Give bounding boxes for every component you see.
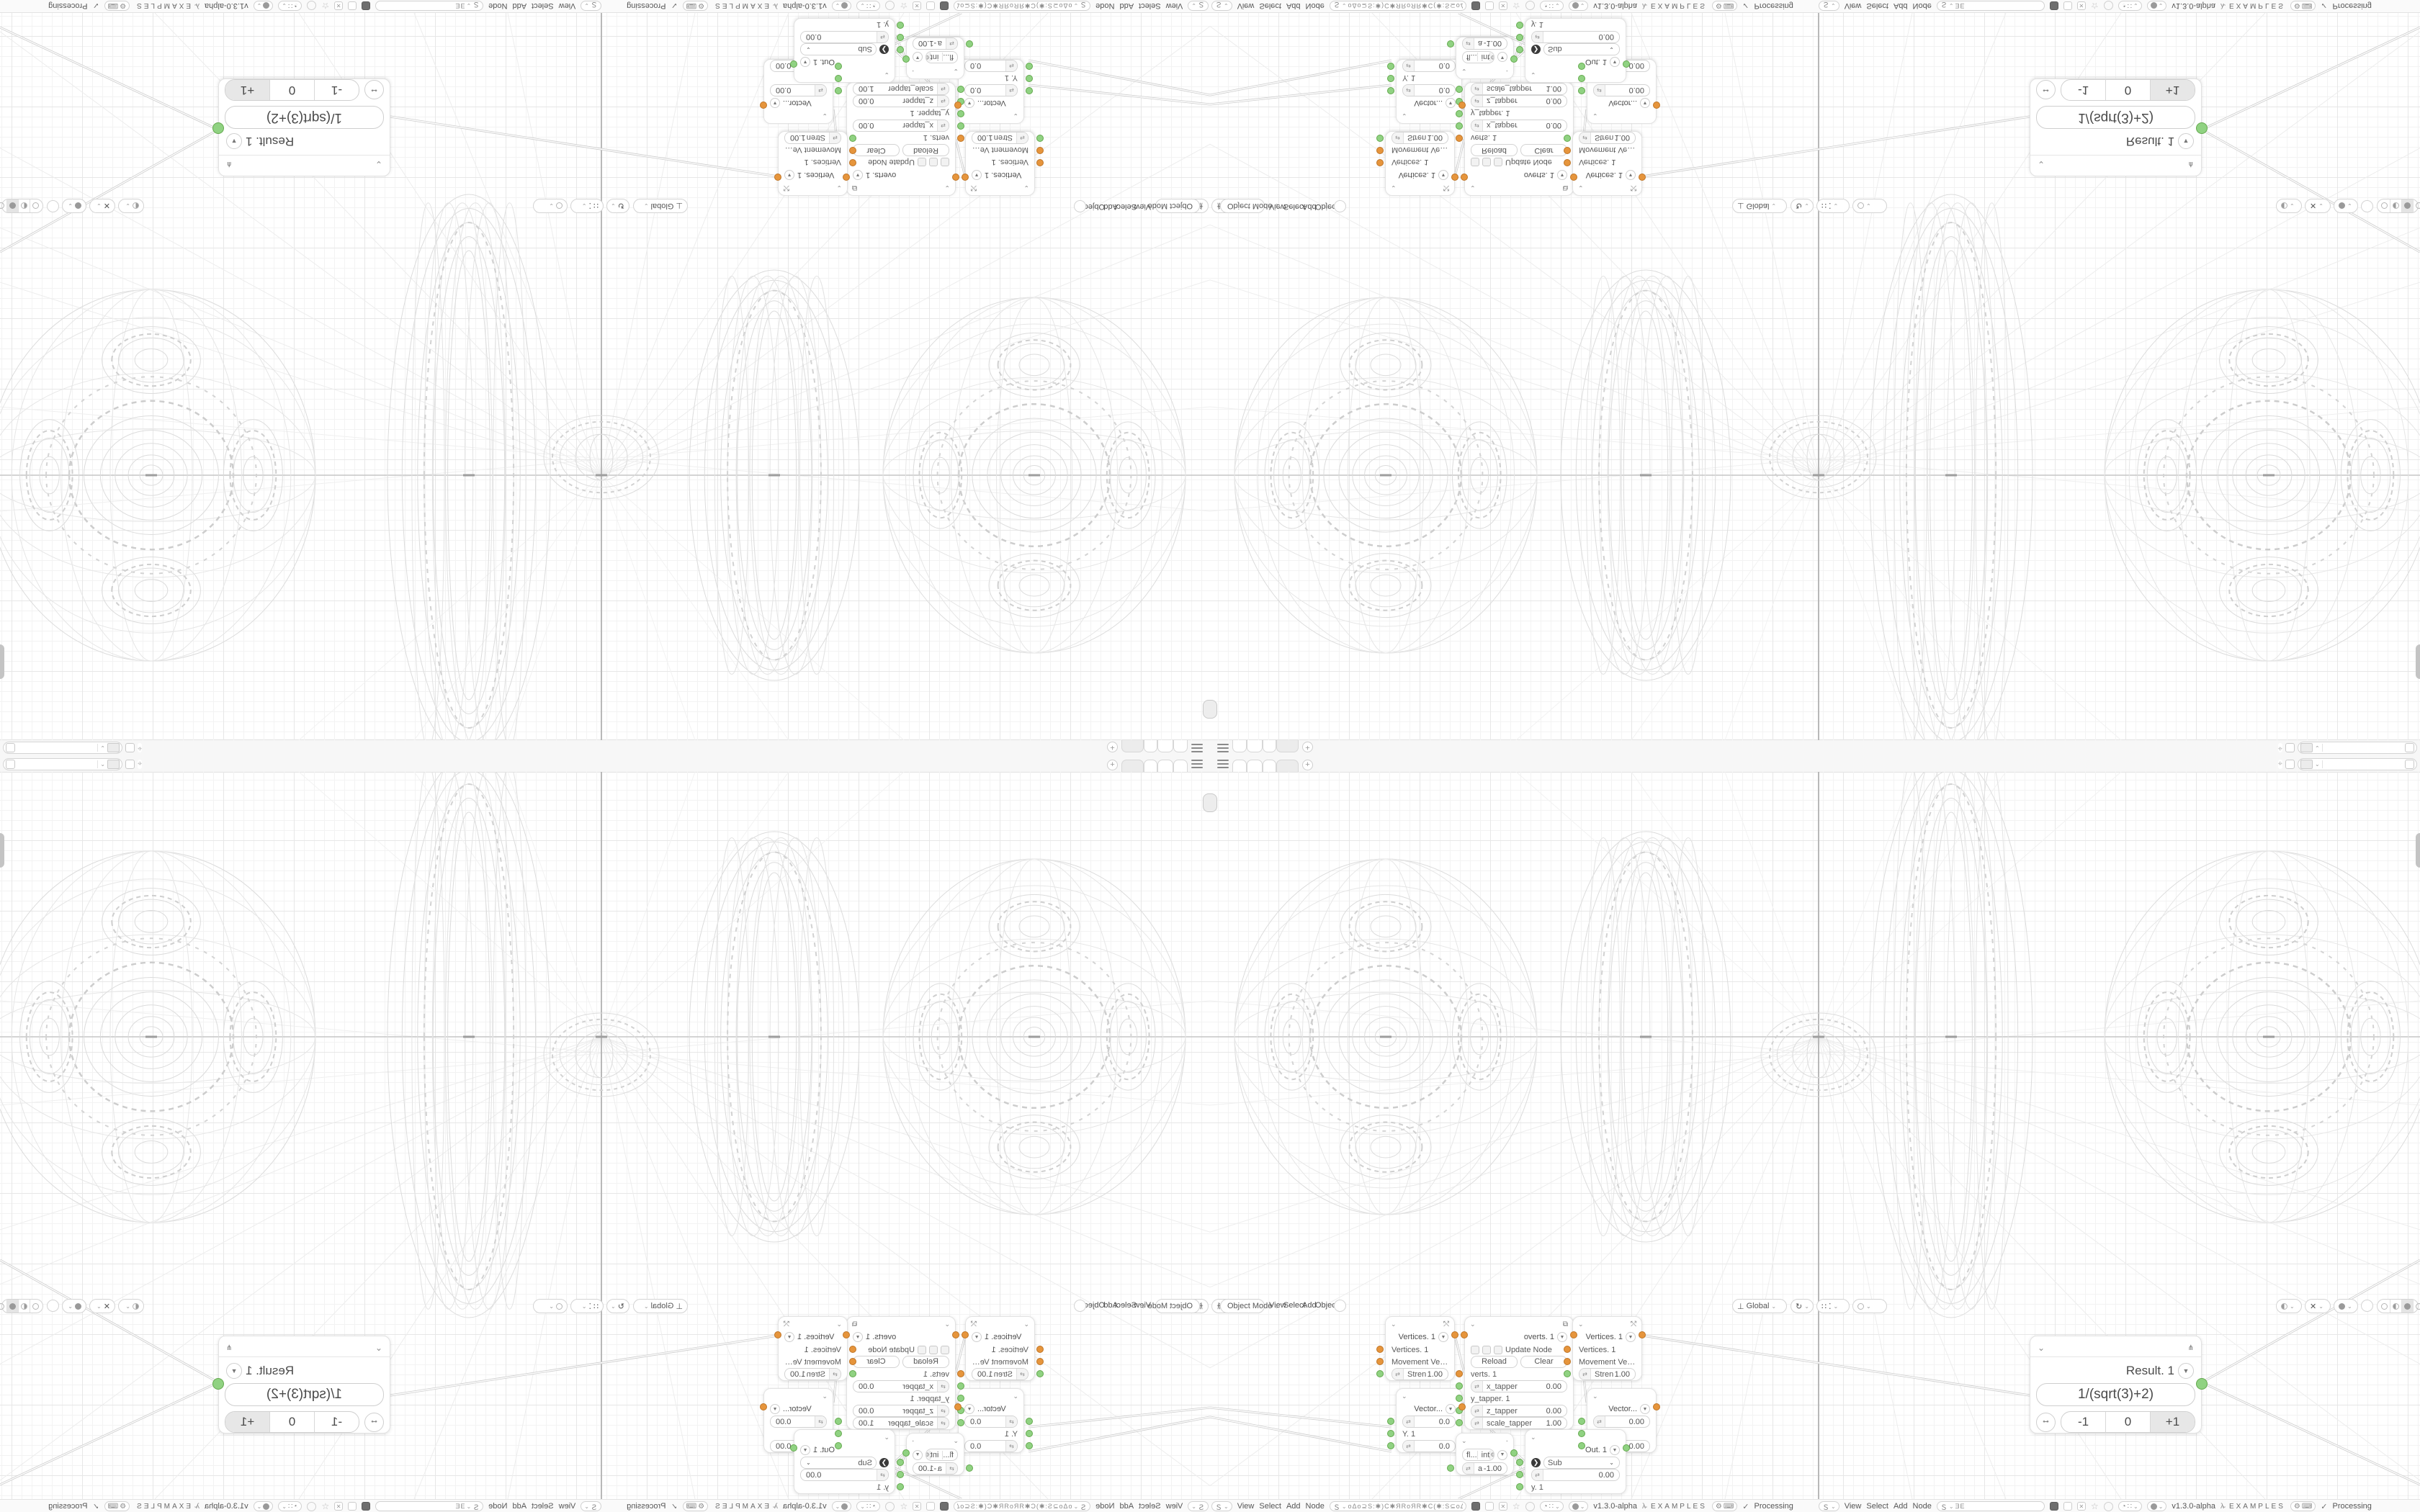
- tab-4[interactable]: [1276, 760, 1299, 772]
- record-icon: [1572, 3, 1579, 9]
- circle-icon[interactable]: [307, 1502, 316, 1511]
- chevron-down-icon: ⌄: [1804, 1303, 1809, 1310]
- shading-material[interactable]: [7, 199, 19, 212]
- shading-rendered[interactable]: [0, 199, 7, 212]
- scene-selector[interactable]: ⌄: [2298, 758, 2417, 770]
- hamburger-icon[interactable]: [1217, 760, 1229, 768]
- shading-solid[interactable]: [2390, 199, 2401, 212]
- panel-handle[interactable]: [1203, 700, 1210, 719]
- menu-view[interactable]: View: [1237, 1, 1255, 10]
- record-button[interactable]: ⌄: [2147, 1501, 2167, 1511]
- scene-name-field[interactable]: [2322, 760, 2403, 768]
- copy-icon[interactable]: [125, 744, 135, 753]
- proportional-edit-icon: [556, 1303, 563, 1310]
- pin-icon[interactable]: ⌖: [138, 760, 142, 769]
- copy-icon[interactable]: [2285, 744, 2295, 753]
- hamburger-icon[interactable]: [1191, 744, 1203, 752]
- viewport-canvas[interactable]: [0, 13, 1210, 740]
- shading-material[interactable]: [7, 1300, 19, 1313]
- mode-selector[interactable]: Object Mode⌄: [1155, 199, 1200, 213]
- shield-icon[interactable]: [2050, 1502, 2058, 1511]
- viewport-header: 𐀪⌄Object Mode⌄ViewSelectAddObject⊥Global…: [0, 1298, 1210, 1315]
- xray-toggle[interactable]: ⌄: [62, 1299, 86, 1313]
- menu-add[interactable]: Add: [1302, 1301, 1317, 1310]
- viewport-canvas[interactable]: [1210, 13, 2420, 740]
- xray-icon: [75, 203, 81, 210]
- tree-path-field[interactable]: Ｓ⌄oΔo⊇S:✱)C✱ЯRoЯR✱C(✱:S⊆oΔo: [954, 1, 1090, 11]
- menu-add[interactable]: Add: [1119, 1502, 1134, 1511]
- shading-solid[interactable]: [2390, 1300, 2401, 1313]
- pin-icon[interactable]: ☆: [321, 1, 329, 11]
- orbit-grid-button[interactable]: ◔∷⌄: [1540, 1501, 1564, 1511]
- pin-icon[interactable]: ⌖: [138, 744, 142, 753]
- chevron-down-icon: ⌄: [2159, 1503, 2164, 1510]
- scene-selector[interactable]: ⌄: [2298, 742, 2417, 755]
- tree-path-field[interactable]: Ｓ⌄oΔo⊇S:✱)C✱ЯRoЯR✱C(✱:S⊆oΔo: [954, 1501, 1090, 1511]
- tree-path-field[interactable]: Ｓ⌄ƎE: [375, 1, 483, 11]
- mode-selector[interactable]: Object Mode⌄: [1155, 1299, 1200, 1313]
- pin-icon[interactable]: ☆: [1512, 1501, 1520, 1511]
- menu-add[interactable]: Add: [1119, 1, 1134, 10]
- status-label: Processing: [1754, 1502, 1793, 1511]
- shading-wireframe[interactable]: [30, 199, 41, 212]
- shield-icon[interactable]: [2050, 1, 2058, 10]
- close-icon[interactable]: ✕: [913, 1502, 921, 1511]
- orbit-icon: ◔: [294, 1503, 298, 1511]
- shading-wireframe[interactable]: [2379, 1300, 2390, 1313]
- orbit-grid-button[interactable]: ◔∷⌄: [856, 1501, 880, 1511]
- tools-group[interactable]: ⚙⌨: [104, 1, 130, 11]
- overlay-icon: ✕: [2310, 202, 2316, 211]
- tree-path-field[interactable]: Ｓ⌄ƎE: [1937, 1, 2045, 11]
- render-preview-circle[interactable]: [47, 1300, 59, 1312]
- copy-icon[interactable]: [2405, 760, 2414, 769]
- menu-add[interactable]: Add: [1894, 1, 1908, 10]
- copy-icon[interactable]: [926, 1502, 935, 1511]
- xray-toggle[interactable]: ⌄: [2334, 199, 2358, 213]
- record-button[interactable]: ⌄: [254, 1501, 274, 1511]
- solid-icon: [2393, 203, 2399, 210]
- tree-path-field[interactable]: Ｓ⌄ƎE: [375, 1501, 483, 1511]
- shield-icon[interactable]: [940, 1502, 949, 1511]
- menu-select[interactable]: Select: [1139, 1, 1161, 10]
- pin-icon[interactable]: ☆: [1512, 1, 1520, 11]
- menu-node[interactable]: Node: [488, 1, 507, 10]
- chevron-down-icon: ⌄: [1804, 203, 1809, 210]
- pin-icon[interactable]: ☆: [2091, 1501, 2099, 1511]
- tab-2[interactable]: [1247, 740, 1263, 752]
- pin-icon[interactable]: ☆: [2091, 1, 2099, 11]
- orbit-grid-button[interactable]: ◔∷⌄: [278, 1, 302, 11]
- shading-rendered[interactable]: [2413, 1300, 2420, 1313]
- menu-node[interactable]: Node: [1095, 1, 1114, 10]
- menu-view[interactable]: View: [1845, 1, 1862, 10]
- dna-icon: λ̴: [2220, 1503, 2224, 1511]
- proportional-editing[interactable]: ⌄: [533, 199, 568, 213]
- terminal-icon: ⌨: [2302, 1503, 2312, 1511]
- close-icon[interactable]: ✕: [2077, 1, 2086, 10]
- gizmo-toggle[interactable]: ⌄: [2276, 199, 2302, 213]
- examples-button[interactable]: EXAMPLES: [135, 2, 191, 10]
- circle-icon[interactable]: [885, 1, 895, 11]
- chevron-down-icon: ⌄: [2290, 1303, 2295, 1310]
- menu-select[interactable]: Select: [1114, 1301, 1137, 1310]
- menu-select[interactable]: Select: [1259, 1, 1281, 10]
- check-icon: ✓: [93, 1502, 99, 1511]
- panel-handle[interactable]: [1203, 793, 1210, 812]
- menu-node[interactable]: Node: [1913, 1502, 1932, 1511]
- xray-toggle[interactable]: ⌄: [2334, 1299, 2358, 1313]
- chevron-down-icon: ⌄: [611, 203, 616, 210]
- shield-icon[interactable]: [1471, 1502, 1480, 1511]
- tab-1[interactable]: [1173, 740, 1188, 752]
- scrollbar-thumb[interactable]: [0, 644, 4, 679]
- snap-toggle[interactable]: ↻⌄: [606, 1299, 629, 1313]
- pin-icon[interactable]: ⌖: [2278, 744, 2282, 753]
- chevron-down-icon: ⌄: [1580, 1503, 1585, 1510]
- copy-icon[interactable]: [1485, 1502, 1494, 1511]
- shading-material[interactable]: [2401, 199, 2413, 212]
- shading-segments: [2379, 1300, 2420, 1313]
- tab-4[interactable]: [1121, 740, 1144, 752]
- chevron-down-icon: ⌄: [2159, 3, 2164, 9]
- wireframe-icon: [32, 203, 39, 210]
- tools-group[interactable]: ⚙⌨: [2290, 1, 2316, 11]
- add-tab-button[interactable]: +: [1302, 742, 1313, 752]
- menu-select[interactable]: Select: [1139, 1502, 1161, 1511]
- circle-icon[interactable]: [2104, 1, 2113, 11]
- tools-group[interactable]: ⚙⌨: [683, 1, 708, 11]
- tree-path-field[interactable]: Ｓ⌄ƎE: [1937, 1501, 2045, 1511]
- tab-2[interactable]: [1157, 760, 1173, 772]
- wireframe-icon: [32, 1303, 39, 1310]
- shading-material[interactable]: [2401, 1300, 2413, 1313]
- menu-view[interactable]: View: [1166, 1502, 1183, 1511]
- menu-select[interactable]: Select: [1114, 202, 1137, 211]
- copy-icon[interactable]: [125, 760, 135, 769]
- tab-1[interactable]: [1173, 760, 1188, 772]
- scrollbar-thumb[interactable]: [2416, 833, 2420, 868]
- menu-select[interactable]: Select: [1866, 1, 1888, 10]
- dna-icon: λ̴: [196, 1503, 200, 1511]
- menu-view[interactable]: View: [1845, 1502, 1862, 1511]
- add-tab-button[interactable]: +: [1107, 742, 1118, 752]
- record-icon: [841, 3, 848, 9]
- scene-selector[interactable]: ⌄: [3, 742, 122, 755]
- snap-toggle[interactable]: ↻⌄: [1791, 1299, 1814, 1313]
- proportional-editing[interactable]: ⌄: [1852, 199, 1887, 213]
- xray-icon: [2339, 1303, 2345, 1310]
- copy-icon[interactable]: [1485, 1, 1494, 10]
- mode-selector[interactable]: Object Mode⌄: [1220, 199, 1265, 213]
- copy-icon[interactable]: [6, 760, 15, 769]
- pin-icon[interactable]: ☆: [321, 1501, 329, 1511]
- tools-group[interactable]: ⚙⌨: [1712, 1501, 1737, 1511]
- shield-icon[interactable]: [1471, 1, 1480, 10]
- editor-type-button[interactable]: Ｓ⌄: [1188, 1, 1209, 11]
- tree-path-value: oΔo⊇S:✱)C✱ЯRoЯR✱C(✱:S⊆oΔo: [1348, 1503, 1463, 1511]
- footer-segment-2: Ｓ⌄ViewSelectAddNodeＳ⌄ƎE✕☆◔∷⌄⌄v1.3.0-alph…: [1, 0, 601, 12]
- terminal-icon: ⌨: [1724, 2, 1734, 10]
- circle-icon[interactable]: [2104, 1502, 2113, 1511]
- tab-3[interactable]: [1144, 740, 1157, 752]
- snap-target-icon: ⁚: [589, 1302, 592, 1311]
- menu-select[interactable]: Select: [532, 1, 554, 10]
- snap-target[interactable]: ∷⁚⌄: [1816, 199, 1850, 213]
- grid-icon: ∷: [2128, 2, 2132, 10]
- hamburger-icon[interactable]: [1191, 760, 1203, 768]
- record-button[interactable]: ⌄: [832, 1, 852, 11]
- circle-icon[interactable]: [1525, 1502, 1535, 1511]
- scene-name-field[interactable]: [17, 760, 98, 768]
- material-icon: [9, 1303, 16, 1310]
- tools-group[interactable]: ⚙⌨: [2290, 1501, 2316, 1511]
- record-icon: [2151, 1503, 2157, 1510]
- annotate-circle[interactable]: [1074, 1300, 1086, 1312]
- chevron-down-icon: ⌄: [584, 3, 589, 9]
- copy-icon[interactable]: [926, 1, 935, 10]
- editor-type-button[interactable]: Ｓ⌄: [1211, 1, 1232, 11]
- pin-icon[interactable]: ⌖: [2278, 760, 2282, 769]
- tools-group[interactable]: ⚙⌨: [1712, 1, 1737, 11]
- tree-path-field[interactable]: Ｓ⌄oΔo⊇S:✱)C✱ЯRoЯR✱C(✱:S⊆oΔo: [1330, 1, 1466, 11]
- tab-2[interactable]: [1247, 760, 1263, 772]
- version-label: v1.3.0-alpha: [783, 1, 827, 10]
- examples-button[interactable]: EXAMPLES: [2229, 1503, 2285, 1511]
- chevron-down-icon: ⌄: [1073, 1503, 1078, 1510]
- shading-wireframe[interactable]: [2379, 199, 2390, 212]
- copy-icon[interactable]: [6, 744, 15, 753]
- gizmo-toggle[interactable]: ⌄: [118, 199, 144, 213]
- shading-mode-group[interactable]: ⌄: [1, 199, 43, 213]
- shading-solid[interactable]: [19, 1300, 30, 1313]
- close-icon[interactable]: ✕: [334, 1, 343, 10]
- status-bar: Ｓ⌄ViewSelectAddNodeＳ⌄oΔo⊇S:✱)C✱ЯRoЯR✱C(✱…: [1210, 0, 2420, 13]
- close-icon[interactable]: ✕: [334, 1502, 343, 1511]
- shading-wireframe[interactable]: [30, 1300, 41, 1313]
- menu-node[interactable]: Node: [1095, 1502, 1114, 1511]
- hamburger-icon[interactable]: [1217, 744, 1229, 752]
- snap-target[interactable]: ∷⁚⌄: [570, 1299, 604, 1313]
- tab-1[interactable]: [1232, 760, 1247, 772]
- editor-type-button[interactable]: Ｓ⌄: [1819, 1501, 1839, 1511]
- orbit-grid-button[interactable]: ◔∷⌄: [1540, 1, 1564, 11]
- mode-selector[interactable]: Object Mode⌄: [1220, 1299, 1265, 1313]
- transform-orientation[interactable]: ⊥Global⌄: [633, 199, 688, 213]
- logo-squiggle-icon: Ｓ: [1080, 1, 1087, 12]
- orbit-grid-button[interactable]: ◔∷⌄: [856, 1, 880, 11]
- chevron-down-icon: ⌄: [1866, 203, 1871, 210]
- terminal-icon: ⌨: [686, 1503, 696, 1511]
- chevron-down-icon: ⌄: [2347, 1303, 2352, 1310]
- tab-3[interactable]: [1263, 760, 1276, 772]
- copy-icon[interactable]: [2405, 744, 2414, 753]
- status-label: Processing: [48, 1502, 87, 1511]
- transform-orientation[interactable]: ⊥Global⌄: [1732, 1299, 1787, 1313]
- examples-button[interactable]: EXAMPLES: [135, 1503, 191, 1511]
- viewport-canvas[interactable]: [1210, 772, 2420, 1499]
- menu-view[interactable]: View: [1166, 1, 1183, 10]
- shield-icon[interactable]: [940, 1, 949, 10]
- menu-add[interactable]: Add: [1103, 202, 1118, 211]
- circle-icon[interactable]: [1525, 1, 1535, 11]
- editor-type-button[interactable]: Ｓ⌄: [581, 1501, 601, 1511]
- tools-group[interactable]: ⚙⌨: [104, 1501, 130, 1511]
- pin-icon[interactable]: ☆: [900, 1, 907, 11]
- snap-target[interactable]: ∷⁚⌄: [1816, 1299, 1850, 1313]
- proportional-editing[interactable]: ⌄: [533, 1299, 568, 1313]
- tab-4[interactable]: [1276, 740, 1299, 752]
- copy-icon[interactable]: [348, 1, 357, 10]
- close-icon[interactable]: ✕: [1499, 1, 1507, 10]
- menu-node[interactable]: Node: [488, 1502, 507, 1511]
- scene-name-field[interactable]: [17, 744, 98, 752]
- menu-add[interactable]: Add: [1894, 1502, 1908, 1511]
- render-preview-circle[interactable]: [47, 200, 59, 212]
- close-icon[interactable]: ✕: [2077, 1502, 2086, 1511]
- shading-solid[interactable]: [19, 199, 30, 212]
- orientation-label: Global: [1747, 1302, 1770, 1310]
- editor-unit: +⌖⌄ 𐀪⌄Object Mode⌄ViewSelectAddObject⊥Gl…: [1210, 756, 2420, 1512]
- menu-node[interactable]: Node: [1306, 1, 1325, 10]
- panel-handle[interactable]: [1210, 793, 1217, 812]
- editor-type-button[interactable]: Ｓ⌄: [1819, 1, 1839, 11]
- scrollbar-thumb[interactable]: [2416, 644, 2420, 679]
- shading-mode-group[interactable]: ⌄: [2377, 1299, 2419, 1313]
- menu-view[interactable]: View: [559, 1, 576, 10]
- record-button[interactable]: ⌄: [1569, 1, 1589, 11]
- orbit-grid-button[interactable]: ◔∷⌄: [2118, 1501, 2142, 1511]
- examples-button[interactable]: EXAMPLES: [713, 1503, 769, 1511]
- close-icon[interactable]: ✕: [1499, 1502, 1507, 1511]
- scene-svg: [0, 772, 1210, 1499]
- gizmo-toggle[interactable]: ⌄: [118, 1299, 144, 1313]
- menu-add[interactable]: Add: [512, 1, 526, 10]
- examples-button[interactable]: EXAMPLES: [1651, 2, 1707, 10]
- chevron-down-icon: ⌄: [257, 1503, 262, 1510]
- editor-type-button[interactable]: Ｓ⌄: [1211, 1501, 1232, 1511]
- shield-icon[interactable]: [362, 1502, 370, 1511]
- annotate-circle[interactable]: [1074, 200, 1086, 212]
- editor-type-button[interactable]: Ｓ⌄: [581, 1, 601, 11]
- copy-icon[interactable]: [2285, 760, 2295, 769]
- proportional-editing[interactable]: ⌄: [1852, 1299, 1887, 1313]
- shading-mode-group[interactable]: ⌄: [2377, 199, 2419, 213]
- overlay-toggle[interactable]: ✕⌄: [2305, 199, 2331, 213]
- copy-icon[interactable]: [348, 1502, 357, 1511]
- xray-toggle[interactable]: ⌄: [62, 199, 86, 213]
- tree-path-field[interactable]: Ｓ⌄oΔo⊇S:✱)C✱ЯRoЯR✱C(✱:S⊆oΔo: [1330, 1501, 1466, 1511]
- shading-mode-group[interactable]: ⌄: [1, 1299, 43, 1313]
- render-preview-circle[interactable]: [2361, 200, 2373, 212]
- menu-view[interactable]: View: [1237, 1502, 1255, 1511]
- overlay-toggle[interactable]: ✕⌄: [89, 199, 115, 213]
- shield-icon[interactable]: [362, 1, 370, 10]
- menu-node[interactable]: Node: [1913, 1, 1932, 10]
- shading-rendered[interactable]: [0, 1300, 7, 1313]
- copy-icon[interactable]: [2063, 1502, 2072, 1511]
- menu-add[interactable]: Add: [1286, 1, 1301, 10]
- viewport-header: 𐀪⌄Object Mode⌄ViewSelectAddObject⊥Global…: [1210, 1298, 2420, 1315]
- pin-icon[interactable]: ☆: [900, 1501, 907, 1511]
- footer-segment-2: Ｓ⌄ViewSelectAddNodeＳ⌄ƎE✕☆◔∷⌄⌄v1.3.0-alph…: [1819, 0, 2419, 12]
- record-button[interactable]: ⌄: [1569, 1501, 1589, 1511]
- annotate-circle[interactable]: [1334, 1300, 1346, 1312]
- overlay-icon: ✕: [104, 1302, 110, 1311]
- menu-select[interactable]: Select: [1866, 1502, 1888, 1511]
- menu-node[interactable]: Node: [1306, 1502, 1325, 1511]
- check-icon: ✓: [93, 1, 99, 11]
- overlay-toggle[interactable]: ✕⌄: [2305, 1299, 2331, 1313]
- circle-icon[interactable]: [307, 1, 316, 11]
- record-button[interactable]: ⌄: [254, 1, 274, 11]
- add-tab-button[interactable]: +: [1302, 760, 1313, 770]
- scene-selector[interactable]: ⌄: [3, 758, 122, 770]
- overlay-toggle[interactable]: ✕⌄: [89, 1299, 115, 1313]
- gizmo-toggle[interactable]: ⌄: [2276, 1299, 2302, 1313]
- gear-icon: ⚙: [1716, 2, 1722, 10]
- orbit-grid-button[interactable]: ◔∷⌄: [278, 1501, 302, 1511]
- orbit-icon: ◔: [872, 1503, 877, 1511]
- examples-button[interactable]: EXAMPLES: [713, 2, 769, 10]
- scene-name-field[interactable]: [2322, 744, 2403, 752]
- add-tab-button[interactable]: +: [1107, 760, 1118, 770]
- menu-select[interactable]: Select: [532, 1502, 554, 1511]
- snap-toggle[interactable]: ↻⌄: [606, 199, 629, 213]
- viewport-canvas[interactable]: [0, 772, 1210, 1499]
- snap-toggle[interactable]: ↻⌄: [1791, 199, 1814, 213]
- menu-add[interactable]: Add: [1103, 1301, 1118, 1310]
- mode-label: Object Mode: [1148, 202, 1193, 210]
- examples-button[interactable]: EXAMPLES: [1651, 1503, 1707, 1511]
- render-preview-circle[interactable]: [2361, 1300, 2373, 1312]
- menu-add[interactable]: Add: [512, 1502, 526, 1511]
- orbit-grid-button[interactable]: ◔∷⌄: [2118, 1, 2142, 11]
- menu-add[interactable]: Add: [1302, 202, 1317, 211]
- transform-orientation[interactable]: ⊥Global⌄: [1732, 199, 1787, 213]
- logo-squiggle-icon: Ｓ: [1940, 1, 1948, 12]
- menu-select[interactable]: Select: [1259, 1502, 1281, 1511]
- tab-3[interactable]: [1263, 740, 1276, 752]
- tab-1[interactable]: [1232, 740, 1247, 752]
- menu-view[interactable]: View: [559, 1502, 576, 1511]
- snap-target[interactable]: ∷⁚⌄: [570, 199, 604, 213]
- shading-rendered[interactable]: [2413, 199, 2420, 212]
- copy-icon[interactable]: [2063, 1, 2072, 10]
- record-button[interactable]: ⌄: [2147, 1, 2167, 11]
- circle-icon[interactable]: [885, 1502, 895, 1511]
- tab-4[interactable]: [1121, 760, 1144, 772]
- menu-add[interactable]: Add: [1286, 1502, 1301, 1511]
- tab-bar: +⌖⌄: [0, 756, 1210, 773]
- tab-bar: +⌖⌄: [1210, 739, 2420, 756]
- dna-icon: λ̴: [196, 2, 200, 10]
- tab-3[interactable]: [1144, 760, 1157, 772]
- chevron-down-icon: ⌄: [282, 1503, 287, 1510]
- close-icon[interactable]: ✕: [913, 1, 921, 10]
- examples-button[interactable]: EXAMPLES: [2229, 2, 2285, 10]
- editor-type-button[interactable]: Ｓ⌄: [1188, 1501, 1209, 1511]
- chevron-down-icon: ⌄: [100, 745, 105, 752]
- annotate-circle[interactable]: [1334, 200, 1346, 212]
- scrollbar-thumb[interactable]: [0, 833, 4, 868]
- transform-orientation[interactable]: ⊥Global⌄: [633, 1299, 688, 1313]
- panel-handle[interactable]: [1210, 700, 1217, 719]
- tab-2[interactable]: [1157, 740, 1173, 752]
- record-button[interactable]: ⌄: [832, 1501, 852, 1511]
- tools-group[interactable]: ⚙⌨: [683, 1501, 708, 1511]
- tree-path-value: ƎE: [454, 2, 465, 9]
